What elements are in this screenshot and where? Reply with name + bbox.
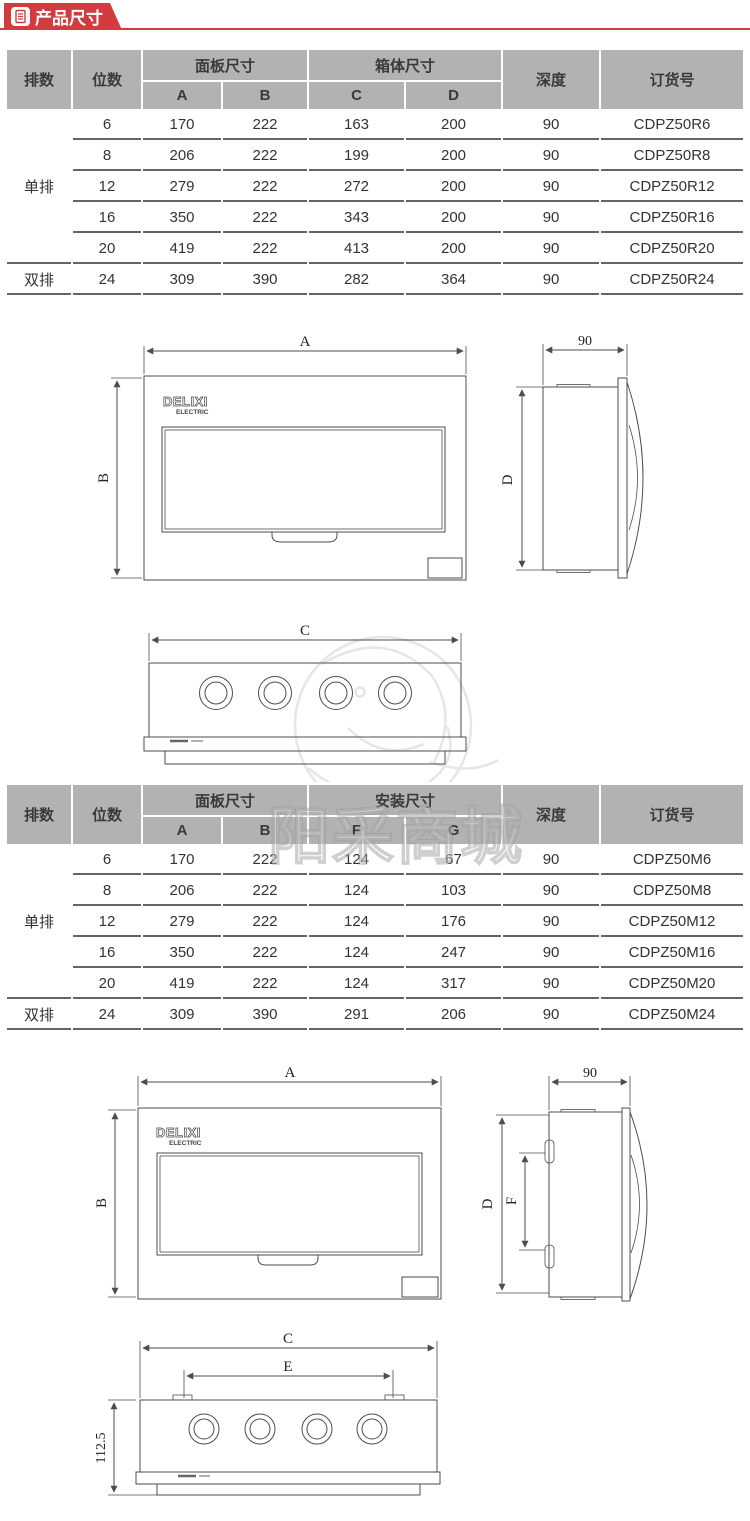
table-cell: 8 bbox=[73, 877, 141, 906]
table-cell: 222 bbox=[223, 173, 307, 202]
table-cell: 272 bbox=[309, 173, 404, 202]
table-cell: 20 bbox=[73, 235, 141, 264]
side-view-drawing: 90 D F bbox=[480, 1066, 647, 1301]
table-cell: 222 bbox=[223, 939, 307, 968]
table-cell: 350 bbox=[143, 204, 221, 233]
table-cell: 279 bbox=[143, 173, 221, 202]
table-cell: 222 bbox=[223, 142, 307, 171]
table-cell: 222 bbox=[223, 970, 307, 999]
row-group-label: 单排 bbox=[7, 111, 71, 264]
col-header-rows: 排数 bbox=[7, 785, 71, 844]
col-header-c: C bbox=[309, 82, 404, 109]
table-cell: 350 bbox=[143, 939, 221, 968]
table-cell: 200 bbox=[406, 173, 501, 202]
table-row: 1227922212417690CDPZ50M12 bbox=[7, 908, 743, 937]
table-cell: 163 bbox=[309, 111, 404, 140]
drawing-set-2: A B DELIXI ELECTRIC 90 D F bbox=[0, 1060, 750, 1520]
col-header-b: B bbox=[223, 82, 307, 109]
drawing-set-1: A B DELIXI ELECTRIC 90 D C bbox=[0, 330, 750, 782]
front-view-drawing: A B DELIXI ELECTRIC bbox=[96, 334, 466, 580]
table-cell: CDPZ50M16 bbox=[601, 939, 743, 968]
col-header-panel-size: 面板尺寸 bbox=[143, 785, 307, 815]
spec-table-cabinet: 排数 位数 面板尺寸 箱体尺寸 深度 订货号 A B C D 单排6170222… bbox=[5, 48, 745, 297]
table-cell: 6 bbox=[73, 846, 141, 875]
table-cell: 206 bbox=[143, 142, 221, 171]
table-cell: CDPZ50R16 bbox=[601, 204, 743, 233]
table-cell: 124 bbox=[309, 877, 404, 906]
dim-label-b: B bbox=[96, 473, 112, 483]
table-cell: 222 bbox=[223, 908, 307, 937]
table-row: 820622212410390CDPZ50M8 bbox=[7, 877, 743, 906]
title-divider-line bbox=[0, 28, 750, 30]
row-group-label: 双排 bbox=[7, 266, 71, 295]
table-cell: 124 bbox=[309, 846, 404, 875]
table-cell: 124 bbox=[309, 939, 404, 968]
table-cell: 419 bbox=[143, 235, 221, 264]
table-cell: 24 bbox=[73, 266, 141, 295]
table-cell: CDPZ50R20 bbox=[601, 235, 743, 264]
brand-logo: DELIXI bbox=[163, 394, 208, 409]
col-header-a: A bbox=[143, 817, 221, 844]
table-cell: 176 bbox=[406, 908, 501, 937]
col-header-depth: 深度 bbox=[503, 785, 599, 844]
table-cell: 6 bbox=[73, 111, 141, 140]
table-cell: 8 bbox=[73, 142, 141, 171]
table-cell: 200 bbox=[406, 204, 501, 233]
table-cell: 24 bbox=[73, 1001, 141, 1030]
table-cell: 90 bbox=[503, 266, 599, 295]
dim-label-a: A bbox=[285, 1065, 296, 1081]
knockout-holes bbox=[189, 1414, 387, 1444]
table-cell: 390 bbox=[223, 1001, 307, 1030]
table-row: 双排2430939029120690CDPZ50M24 bbox=[7, 1001, 743, 1030]
table-cell: 12 bbox=[73, 908, 141, 937]
spec-table-mounting: 排数 位数 面板尺寸 安装尺寸 深度 订货号 A B F G 单排6170222… bbox=[5, 783, 745, 1032]
table-cell: 222 bbox=[223, 235, 307, 264]
dim-label-d: D bbox=[500, 474, 516, 485]
col-header-f: F bbox=[309, 817, 404, 844]
table-cell: 200 bbox=[406, 111, 501, 140]
table-cell: 90 bbox=[503, 111, 599, 140]
table-cell: 20 bbox=[73, 970, 141, 999]
table-cell: CDPZ50R8 bbox=[601, 142, 743, 171]
table-cell: 170 bbox=[143, 846, 221, 875]
table-cell: 200 bbox=[406, 142, 501, 171]
col-header-g: G bbox=[406, 817, 501, 844]
table-cell: 90 bbox=[503, 970, 599, 999]
table-cell: CDPZ50R12 bbox=[601, 173, 743, 202]
table-cell: 419 bbox=[143, 970, 221, 999]
table-cell: 200 bbox=[406, 235, 501, 264]
dim-label-c: C bbox=[300, 623, 310, 639]
brand-logo: DELIXI bbox=[156, 1125, 201, 1140]
table-cell: 90 bbox=[503, 204, 599, 233]
row-group-label: 双排 bbox=[7, 1001, 71, 1030]
table-cell: 282 bbox=[309, 266, 404, 295]
table-cell: 413 bbox=[309, 235, 404, 264]
table-cell: 103 bbox=[406, 877, 501, 906]
col-header-ways: 位数 bbox=[73, 785, 141, 844]
col-header-panel-size: 面板尺寸 bbox=[143, 50, 307, 80]
section-title-badge: 产品尺寸 bbox=[4, 3, 122, 30]
table-cell: 291 bbox=[309, 1001, 404, 1030]
brand-logo-sub: ELECTRIC bbox=[169, 1140, 202, 1147]
col-header-order-no: 订货号 bbox=[601, 50, 743, 109]
table-cell: 206 bbox=[406, 1001, 501, 1030]
table-cell: 90 bbox=[503, 939, 599, 968]
table-cell: 16 bbox=[73, 939, 141, 968]
mounting-tab bbox=[173, 1395, 192, 1400]
table-row: 单排617022216320090CDPZ50R6 bbox=[7, 111, 743, 140]
table-row: 1635022212424790CDPZ50M16 bbox=[7, 939, 743, 968]
table-cell: 90 bbox=[503, 173, 599, 202]
dim-label-90: 90 bbox=[583, 1066, 597, 1081]
table-row: 820622219920090CDPZ50R8 bbox=[7, 142, 743, 171]
bottom-view-drawing: C E 112.5 bbox=[94, 1331, 440, 1495]
dim-label-d: D bbox=[480, 1198, 496, 1209]
table-cell: 222 bbox=[223, 877, 307, 906]
section-title: 产品尺寸 bbox=[35, 4, 103, 29]
table-cell: 12 bbox=[73, 173, 141, 202]
table-cell: 222 bbox=[223, 846, 307, 875]
side-view-drawing: 90 D bbox=[500, 334, 643, 578]
table-cell: CDPZ50M8 bbox=[601, 877, 743, 906]
table-cell: 90 bbox=[503, 877, 599, 906]
table-cell: 390 bbox=[223, 266, 307, 295]
table-cell: 279 bbox=[143, 908, 221, 937]
dim-label-c: C bbox=[283, 1331, 293, 1347]
table-cell: 90 bbox=[503, 1001, 599, 1030]
col-header-install-size: 安装尺寸 bbox=[309, 785, 501, 815]
col-header-box-size: 箱体尺寸 bbox=[309, 50, 501, 80]
brand-logo-sub: ELECTRIC bbox=[176, 409, 209, 416]
table-cell: 16 bbox=[73, 204, 141, 233]
table-cell: CDPZ50M12 bbox=[601, 908, 743, 937]
table-cell: CDPZ50M6 bbox=[601, 846, 743, 875]
table-cell: CDPZ50M24 bbox=[601, 1001, 743, 1030]
table-cell: 222 bbox=[223, 111, 307, 140]
dim-label-e: E bbox=[283, 1359, 292, 1375]
table-cell: 170 bbox=[143, 111, 221, 140]
table-cell: 343 bbox=[309, 204, 404, 233]
table-cell: 222 bbox=[223, 204, 307, 233]
table-row: 1635022234320090CDPZ50R16 bbox=[7, 204, 743, 233]
dim-label-90: 90 bbox=[578, 334, 592, 349]
table-cell: CDPZ50R6 bbox=[601, 111, 743, 140]
table-cell: CDPZ50M20 bbox=[601, 970, 743, 999]
section-title-bar: 产品尺寸 bbox=[0, 0, 750, 34]
table-cell: CDPZ50R24 bbox=[601, 266, 743, 295]
dim-label-f: F bbox=[504, 1197, 520, 1205]
table-cell: 90 bbox=[503, 235, 599, 264]
mounting-tab bbox=[385, 1395, 404, 1400]
table-cell: 199 bbox=[309, 142, 404, 171]
table-row: 双排2430939028236490CDPZ50R24 bbox=[7, 266, 743, 295]
col-header-ways: 位数 bbox=[73, 50, 141, 109]
table-cell: 364 bbox=[406, 266, 501, 295]
table-cell: 90 bbox=[503, 142, 599, 171]
table-cell: 247 bbox=[406, 939, 501, 968]
table-cell: 90 bbox=[503, 908, 599, 937]
table-cell: 67 bbox=[406, 846, 501, 875]
table-row: 1227922227220090CDPZ50R12 bbox=[7, 173, 743, 202]
col-header-d: D bbox=[406, 82, 501, 109]
col-header-a: A bbox=[143, 82, 221, 109]
table-row: 2041922241320090CDPZ50R20 bbox=[7, 235, 743, 264]
dim-label-a: A bbox=[300, 334, 311, 350]
col-header-rows: 排数 bbox=[7, 50, 71, 109]
col-header-b: B bbox=[223, 817, 307, 844]
dim-label-b: B bbox=[94, 1198, 110, 1208]
front-view-drawing: A B DELIXI ELECTRIC bbox=[94, 1065, 441, 1299]
table-row: 单排61702221246790CDPZ50M6 bbox=[7, 846, 743, 875]
row-group-label: 单排 bbox=[7, 846, 71, 999]
table-cell: 124 bbox=[309, 908, 404, 937]
document-icon bbox=[11, 7, 30, 26]
table-cell: 206 bbox=[143, 877, 221, 906]
table-cell: 90 bbox=[503, 846, 599, 875]
table-cell: 309 bbox=[143, 266, 221, 295]
table-row: 2041922212431790CDPZ50M20 bbox=[7, 970, 743, 999]
table-cell: 124 bbox=[309, 970, 404, 999]
dim-label-112-5: 112.5 bbox=[94, 1433, 109, 1464]
col-header-depth: 深度 bbox=[503, 50, 599, 109]
table-cell: 309 bbox=[143, 1001, 221, 1030]
table-cell: 317 bbox=[406, 970, 501, 999]
col-header-order-no: 订货号 bbox=[601, 785, 743, 844]
